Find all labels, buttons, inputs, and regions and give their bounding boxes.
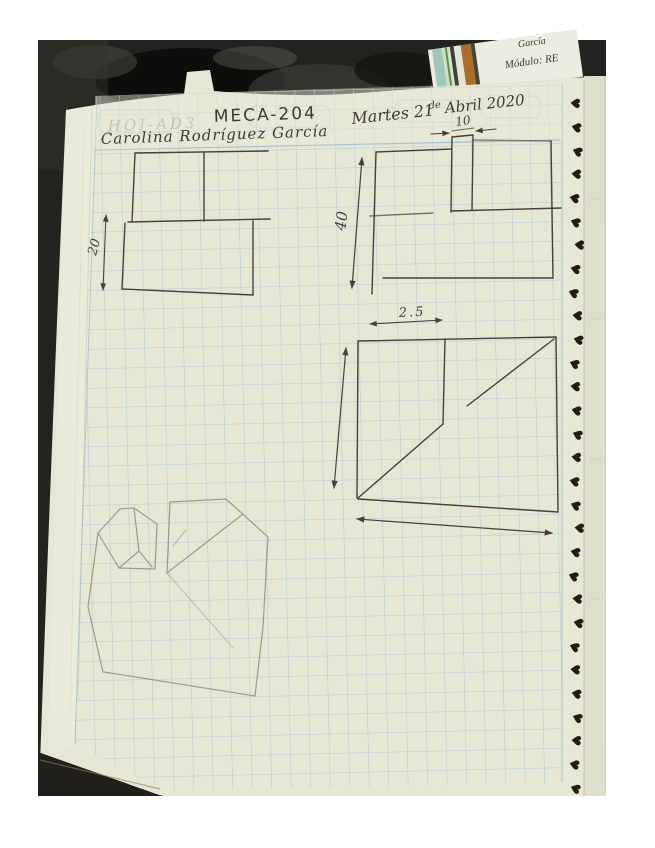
spiral-loop-icon: ♥ bbox=[568, 309, 584, 322]
grid-paper bbox=[68, 76, 568, 796]
dimension-label-10: 10 bbox=[454, 113, 471, 129]
spiral-loop-icon: ♥ bbox=[568, 592, 584, 605]
spiral-loop-icon: ♥ bbox=[566, 97, 582, 110]
spiral-loop-icon: ♥ bbox=[566, 380, 582, 393]
spiral-loop-icon: ♥ bbox=[567, 734, 583, 747]
next-page-edge bbox=[584, 76, 606, 796]
date-middle: de bbox=[428, 100, 441, 112]
notebook-photo: García Módulo: RE bbox=[0, 0, 655, 848]
dimension-label-40: 40 bbox=[331, 210, 352, 233]
dimension-label-25: 2.5 bbox=[397, 305, 425, 321]
spiral-loop-icon: ♥ bbox=[567, 167, 583, 180]
spiral-loop-icon: ♥ bbox=[570, 238, 586, 251]
spiral-loop-icon: ♥ bbox=[570, 521, 586, 534]
spiral-loop-icon: ♥ bbox=[566, 663, 582, 676]
screenshot-canvas: García Módulo: RE bbox=[0, 0, 655, 848]
spiral-loop-icon: ♥ bbox=[567, 451, 583, 464]
notebook-page bbox=[38, 70, 606, 796]
